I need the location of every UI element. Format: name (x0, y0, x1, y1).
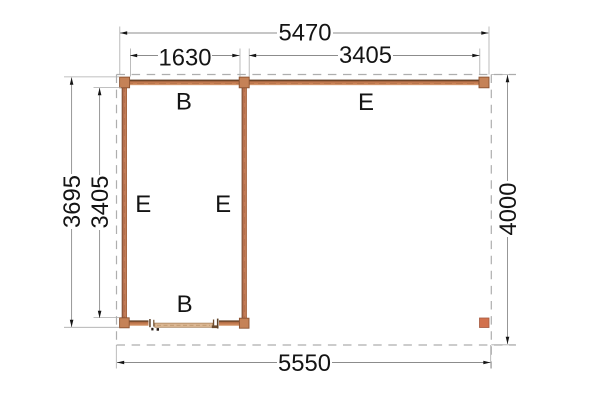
svg-text:B: B (177, 291, 193, 318)
svg-text:3405: 3405 (87, 176, 114, 229)
svg-text:3405: 3405 (339, 42, 392, 69)
svg-text:5470: 5470 (279, 19, 332, 46)
svg-text:3695: 3695 (59, 175, 86, 228)
svg-text:E: E (135, 191, 151, 218)
svg-text:E: E (358, 89, 374, 116)
svg-text:E: E (215, 191, 231, 218)
svg-text:1630: 1630 (159, 44, 212, 71)
svg-text:B: B (176, 89, 192, 116)
svg-text:5550: 5550 (278, 350, 331, 377)
svg-text:4000: 4000 (495, 183, 522, 236)
